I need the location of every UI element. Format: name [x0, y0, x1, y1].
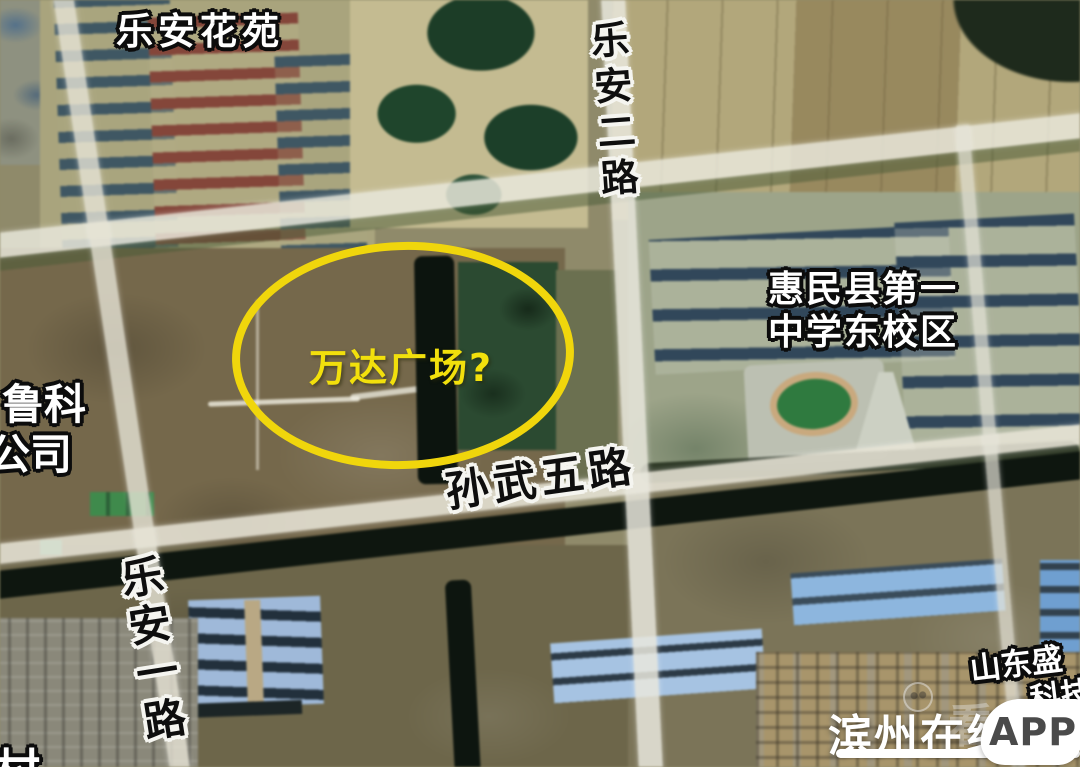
label-residential-leanhuayuan: 乐安花苑	[116, 10, 284, 54]
label-village-partial: 村	[0, 744, 40, 767]
label-company-line1: 鲁科	[0, 380, 86, 430]
label-school: 惠民县第一 中学东校区	[768, 268, 958, 354]
label-school-line2: 中学东校区	[768, 311, 958, 354]
label-school-line1: 惠民县第一	[768, 268, 958, 311]
label-company-line2: 公司	[0, 430, 86, 480]
label-company-luke: 鲁科 公司	[0, 380, 86, 481]
watermark-app-label: APP	[982, 699, 1080, 765]
watermark-app-badge: APP	[975, 699, 1080, 765]
satellite-map-screenshot: 乐安花苑 乐安二路 万达广场? 惠民县第一 中学东校区 孙武五路 乐安一路 鲁科…	[0, 0, 1080, 767]
label-wanda-plaza-question: 万达广场?	[309, 346, 493, 392]
